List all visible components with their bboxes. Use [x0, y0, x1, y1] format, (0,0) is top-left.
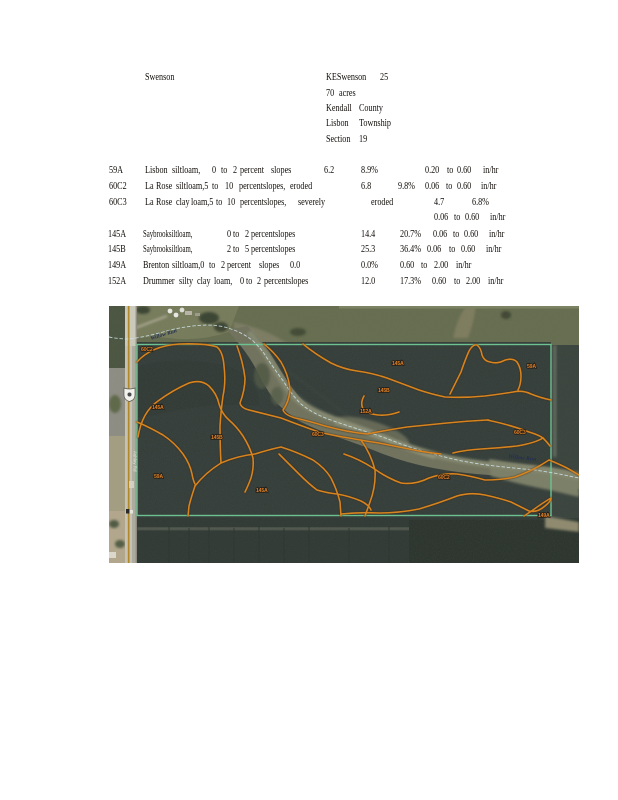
svg-text:59A: 59A	[527, 364, 536, 370]
svg-text:152A: 152A	[360, 409, 372, 415]
svg-text:145A: 145A	[392, 361, 404, 367]
svg-text:Ashley Rd: Ashley Rd	[133, 451, 138, 472]
svg-text:60C3: 60C3	[514, 430, 526, 436]
svg-text:59A: 59A	[154, 474, 163, 480]
svg-text:145A: 145A	[152, 405, 164, 411]
svg-text:60C2: 60C2	[141, 347, 153, 353]
svg-text:149A: 149A	[538, 513, 550, 519]
svg-text:60C2: 60C2	[438, 475, 450, 481]
svg-text:145B: 145B	[378, 388, 390, 394]
svg-text:145A: 145A	[256, 488, 268, 494]
svg-text:60C3: 60C3	[312, 432, 324, 438]
svg-text:145B: 145B	[211, 435, 223, 441]
